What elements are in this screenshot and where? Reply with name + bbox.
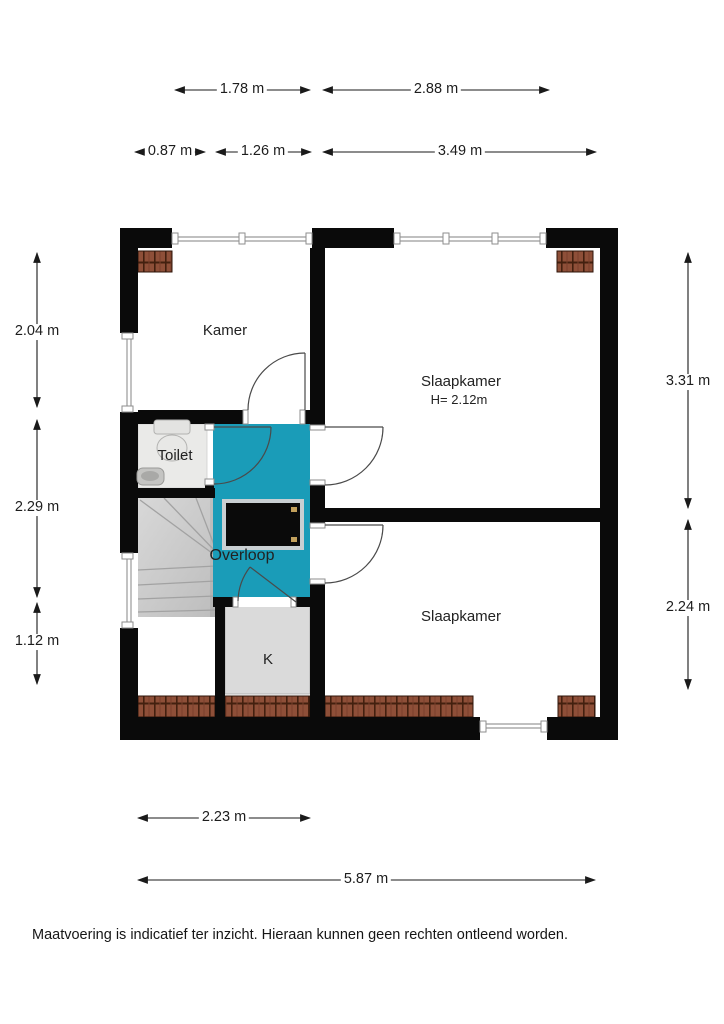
window-bottom-slaapkamer (480, 717, 547, 739)
room-label-toilet: Toilet (157, 448, 192, 465)
loft-hatch (222, 499, 304, 550)
window-slaapkamer-top (394, 228, 546, 248)
closet-floor (225, 605, 310, 694)
window-left-kamer (120, 333, 138, 412)
room-label-kamer: Kamer (203, 323, 247, 340)
staircase (138, 498, 216, 617)
dimension-label: 2.29 m (12, 500, 62, 516)
dimension-label: 2.23 m (199, 810, 249, 826)
disclaimer-text: Maatvoering is indicatief ter inzicht. H… (32, 927, 568, 943)
dimension-label: 3.49 m (435, 144, 485, 160)
dimension-label: 2.04 m (12, 324, 62, 340)
room-label-overloop: Overloop (210, 547, 275, 565)
sink-basin-icon (141, 471, 159, 481)
dimension-label: 1.26 m (238, 144, 288, 160)
room-label-slaapkamer-2: Slaapkamer (421, 609, 501, 626)
floorplan-page: 1.78 m 2.88 m 0.87 m 1.26 m 3.49 m 2.04 … (0, 0, 724, 1024)
dimension-label: 2.88 m (411, 82, 461, 98)
dimension-label: 0.87 m (145, 144, 195, 160)
room-height-note: H= 2.12m (431, 393, 488, 407)
dimension-label: 1.12 m (12, 634, 62, 650)
window-left-overloop (120, 553, 138, 628)
dimension-label: 1.78 m (217, 82, 267, 98)
dimension-label: 3.31 m (663, 374, 713, 390)
hatch-hinge-icon (291, 537, 297, 542)
hatch-hinge-icon (291, 507, 297, 512)
window-kamer-top (172, 228, 312, 248)
room-label-kast: K (263, 652, 273, 669)
dimension-label: 2.24 m (663, 600, 713, 616)
dimension-label: 5.87 m (341, 872, 391, 888)
room-label-slaapkamer-1: Slaapkamer (421, 374, 501, 391)
